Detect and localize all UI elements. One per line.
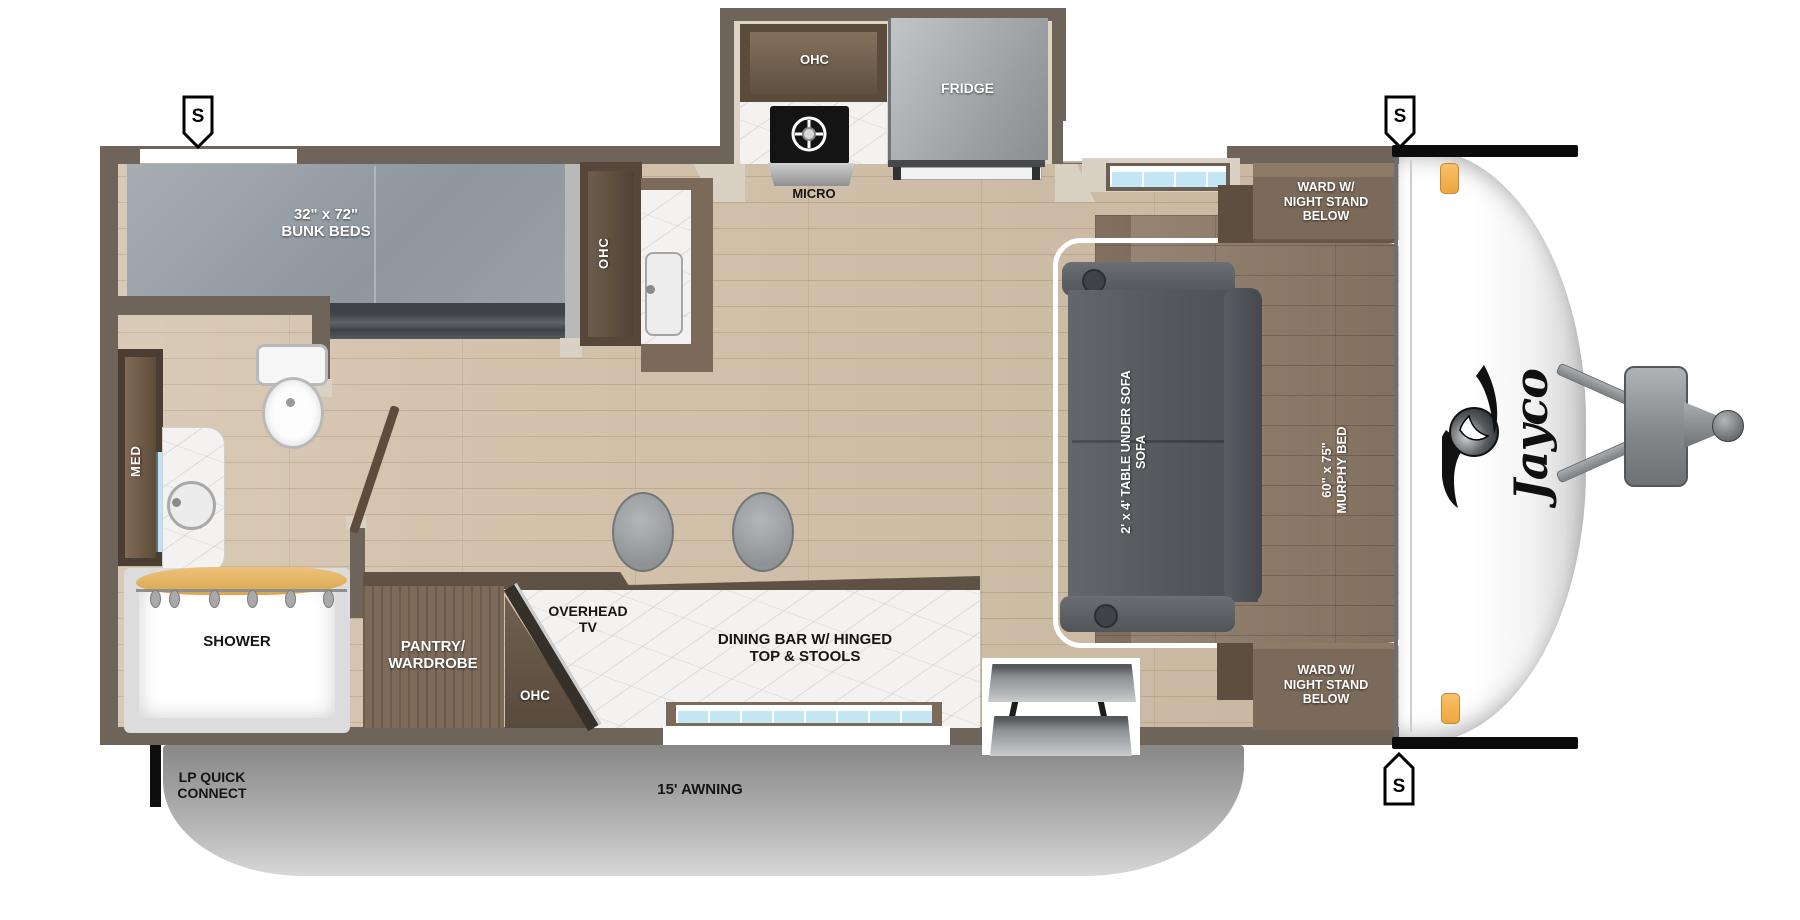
cap-band-bottom bbox=[1392, 737, 1578, 749]
sink-counter-back bbox=[641, 178, 713, 190]
fridge-handle-end bbox=[1032, 167, 1040, 180]
ward-top-label: WARD W/ NIGHT STAND BELOW bbox=[1262, 180, 1390, 224]
speaker-marker-text: S bbox=[192, 106, 205, 127]
sofa-text: SOFA bbox=[1134, 435, 1148, 469]
ward-bottom-text3: BELOW bbox=[1303, 692, 1350, 706]
tv-ohc-text: OHC bbox=[520, 688, 550, 703]
kitchen-faucet-icon bbox=[646, 285, 655, 294]
bath-faucet-icon bbox=[172, 498, 181, 507]
entry-step-lower bbox=[990, 716, 1132, 756]
ward-bottom-text2: NIGHT STAND bbox=[1284, 678, 1369, 692]
fridge-handle bbox=[893, 167, 1042, 180]
toilet-bowl bbox=[262, 377, 324, 449]
cap-seam bbox=[1394, 158, 1398, 736]
jayco-bird-icon bbox=[1442, 360, 1504, 510]
cap-seam-inner bbox=[1410, 160, 1412, 732]
speaker-marker-text: S bbox=[1394, 106, 1407, 127]
med-label: MED bbox=[128, 406, 152, 516]
sofa-label: 2' x 4' TABLE UNDER SOFA SOFA bbox=[1119, 332, 1159, 572]
lp-text1: LP QUICK bbox=[179, 769, 246, 785]
burner-icon bbox=[786, 111, 832, 157]
bath-wall-horizontal bbox=[116, 296, 330, 315]
bunk-window bbox=[140, 149, 297, 165]
dining-window-glass bbox=[676, 711, 932, 723]
ward-top-text1: WARD W/ bbox=[1298, 180, 1355, 194]
dining-text2: TOP & STOOLS bbox=[750, 648, 861, 665]
ward-bottom-label: WARD W/ NIGHT STAND BELOW bbox=[1262, 663, 1390, 707]
kitchen-ohc-text: OHC bbox=[800, 52, 829, 67]
ward-top-text2: NIGHT STAND bbox=[1284, 195, 1369, 209]
awning-text: 15' AWNING bbox=[657, 781, 743, 798]
dining-text1: DINING BAR W/ HINGED bbox=[718, 631, 892, 648]
overhead-tv-label: OVERHEAD TV bbox=[530, 603, 646, 635]
sofa-cupholder-icon bbox=[1094, 604, 1118, 628]
sofa-table-text: 2' x 4' TABLE UNDER SOFA bbox=[1119, 370, 1133, 533]
kitchen-ohc-label: OHC bbox=[752, 52, 877, 67]
curtain-ring-icon bbox=[247, 590, 258, 608]
lp-text2: CONNECT bbox=[177, 785, 246, 801]
floorplan-diagram: 32" x 72" BUNK BEDS OHC MED SHOWER bbox=[0, 0, 1800, 920]
curtain-ring-icon bbox=[285, 590, 296, 608]
fridge-text: FRIDGE bbox=[941, 80, 994, 96]
nightstand-bottom bbox=[1217, 643, 1253, 700]
fridge-label: FRIDGE bbox=[905, 80, 1030, 96]
clearance-light-icon bbox=[1440, 163, 1459, 194]
murphy-bed-label: 60" x 75" MURPHY BED bbox=[1319, 395, 1355, 545]
wall-left bbox=[100, 146, 118, 745]
murphy-name-text: MURPHY BED bbox=[1334, 426, 1349, 513]
med-text: MED bbox=[128, 445, 143, 477]
bunk-bed-label: 32" x 72" BUNK BEDS bbox=[216, 206, 436, 241]
murphy-size-text: 60" x 75" bbox=[1319, 442, 1334, 498]
bunk-name-text: BUNK BEDS bbox=[281, 223, 370, 240]
sofa-backrest bbox=[1224, 288, 1262, 602]
pantry-text1: PANTRY/ bbox=[401, 638, 465, 655]
front-window-opening bbox=[1063, 121, 1227, 163]
range-vent bbox=[768, 163, 855, 186]
speaker-marker-icon: S bbox=[1384, 95, 1416, 149]
speaker-marker-text: S bbox=[1393, 776, 1406, 797]
toilet-flush-icon bbox=[286, 398, 295, 407]
bar-stool bbox=[612, 492, 674, 572]
micro-label: MICRO bbox=[772, 186, 856, 201]
bar-stool bbox=[732, 492, 794, 572]
sink-cabinet-base bbox=[641, 344, 713, 372]
hitch-ball-icon bbox=[1712, 410, 1744, 442]
pantry-text2: WARDROBE bbox=[388, 655, 477, 672]
fridge-handle-base bbox=[888, 160, 1045, 167]
bunk-ohc-label: OHC bbox=[596, 193, 622, 313]
curtain-ring-icon bbox=[169, 590, 180, 608]
clearance-light-icon bbox=[1441, 693, 1460, 724]
slideout-wall-left bbox=[720, 8, 734, 164]
cap-band-top bbox=[1392, 145, 1578, 157]
ward-bottom-text1: WARD W/ bbox=[1298, 663, 1355, 677]
bunk-size-text: 32" x 72" bbox=[294, 206, 358, 223]
bunk-bed-rail-cap bbox=[565, 164, 580, 346]
shower-text: SHOWER bbox=[203, 633, 271, 650]
bunk-corner-cap bbox=[560, 338, 582, 357]
curtain-ring-icon bbox=[150, 590, 161, 608]
awning bbox=[163, 745, 1244, 876]
pantry-label: PANTRY/ WARDROBE bbox=[368, 638, 498, 673]
shower-curtain-rod bbox=[136, 589, 347, 592]
dining-bar-label: DINING BAR W/ HINGED TOP & STOOLS bbox=[655, 631, 955, 666]
awning-label: 15' AWNING bbox=[630, 781, 770, 798]
sofa-armrest-bottom bbox=[1060, 596, 1235, 632]
micro-text: MICRO bbox=[792, 186, 835, 201]
tv-text1: OVERHEAD bbox=[548, 603, 627, 619]
kitchen-sink-basin bbox=[645, 252, 683, 336]
fridge-handle-end bbox=[893, 167, 901, 180]
ward-top-text3: BELOW bbox=[1303, 209, 1350, 223]
curtain-ring-icon bbox=[209, 590, 220, 608]
speaker-marker-icon: S bbox=[1383, 752, 1415, 806]
shower-label: SHOWER bbox=[162, 633, 312, 650]
bunk-ohc-text: OHC bbox=[596, 237, 611, 269]
tv-text2: TV bbox=[579, 619, 597, 635]
front-window-glass bbox=[1110, 172, 1226, 187]
brand-logo: Jayco bbox=[1430, 315, 1570, 555]
speaker-marker-icon: S bbox=[182, 95, 214, 149]
brand-logo-text: Jayco bbox=[1504, 369, 1558, 501]
entry-step-upper bbox=[988, 664, 1136, 702]
curtain-ring-icon bbox=[323, 590, 334, 608]
lp-quick-connect-label: LP QUICK CONNECT bbox=[157, 769, 267, 801]
nightstand-top bbox=[1218, 185, 1254, 243]
propane-cover bbox=[1624, 366, 1688, 487]
bunk-bed-rail bbox=[330, 303, 567, 339]
bottom-wall-gap bbox=[663, 726, 950, 745]
